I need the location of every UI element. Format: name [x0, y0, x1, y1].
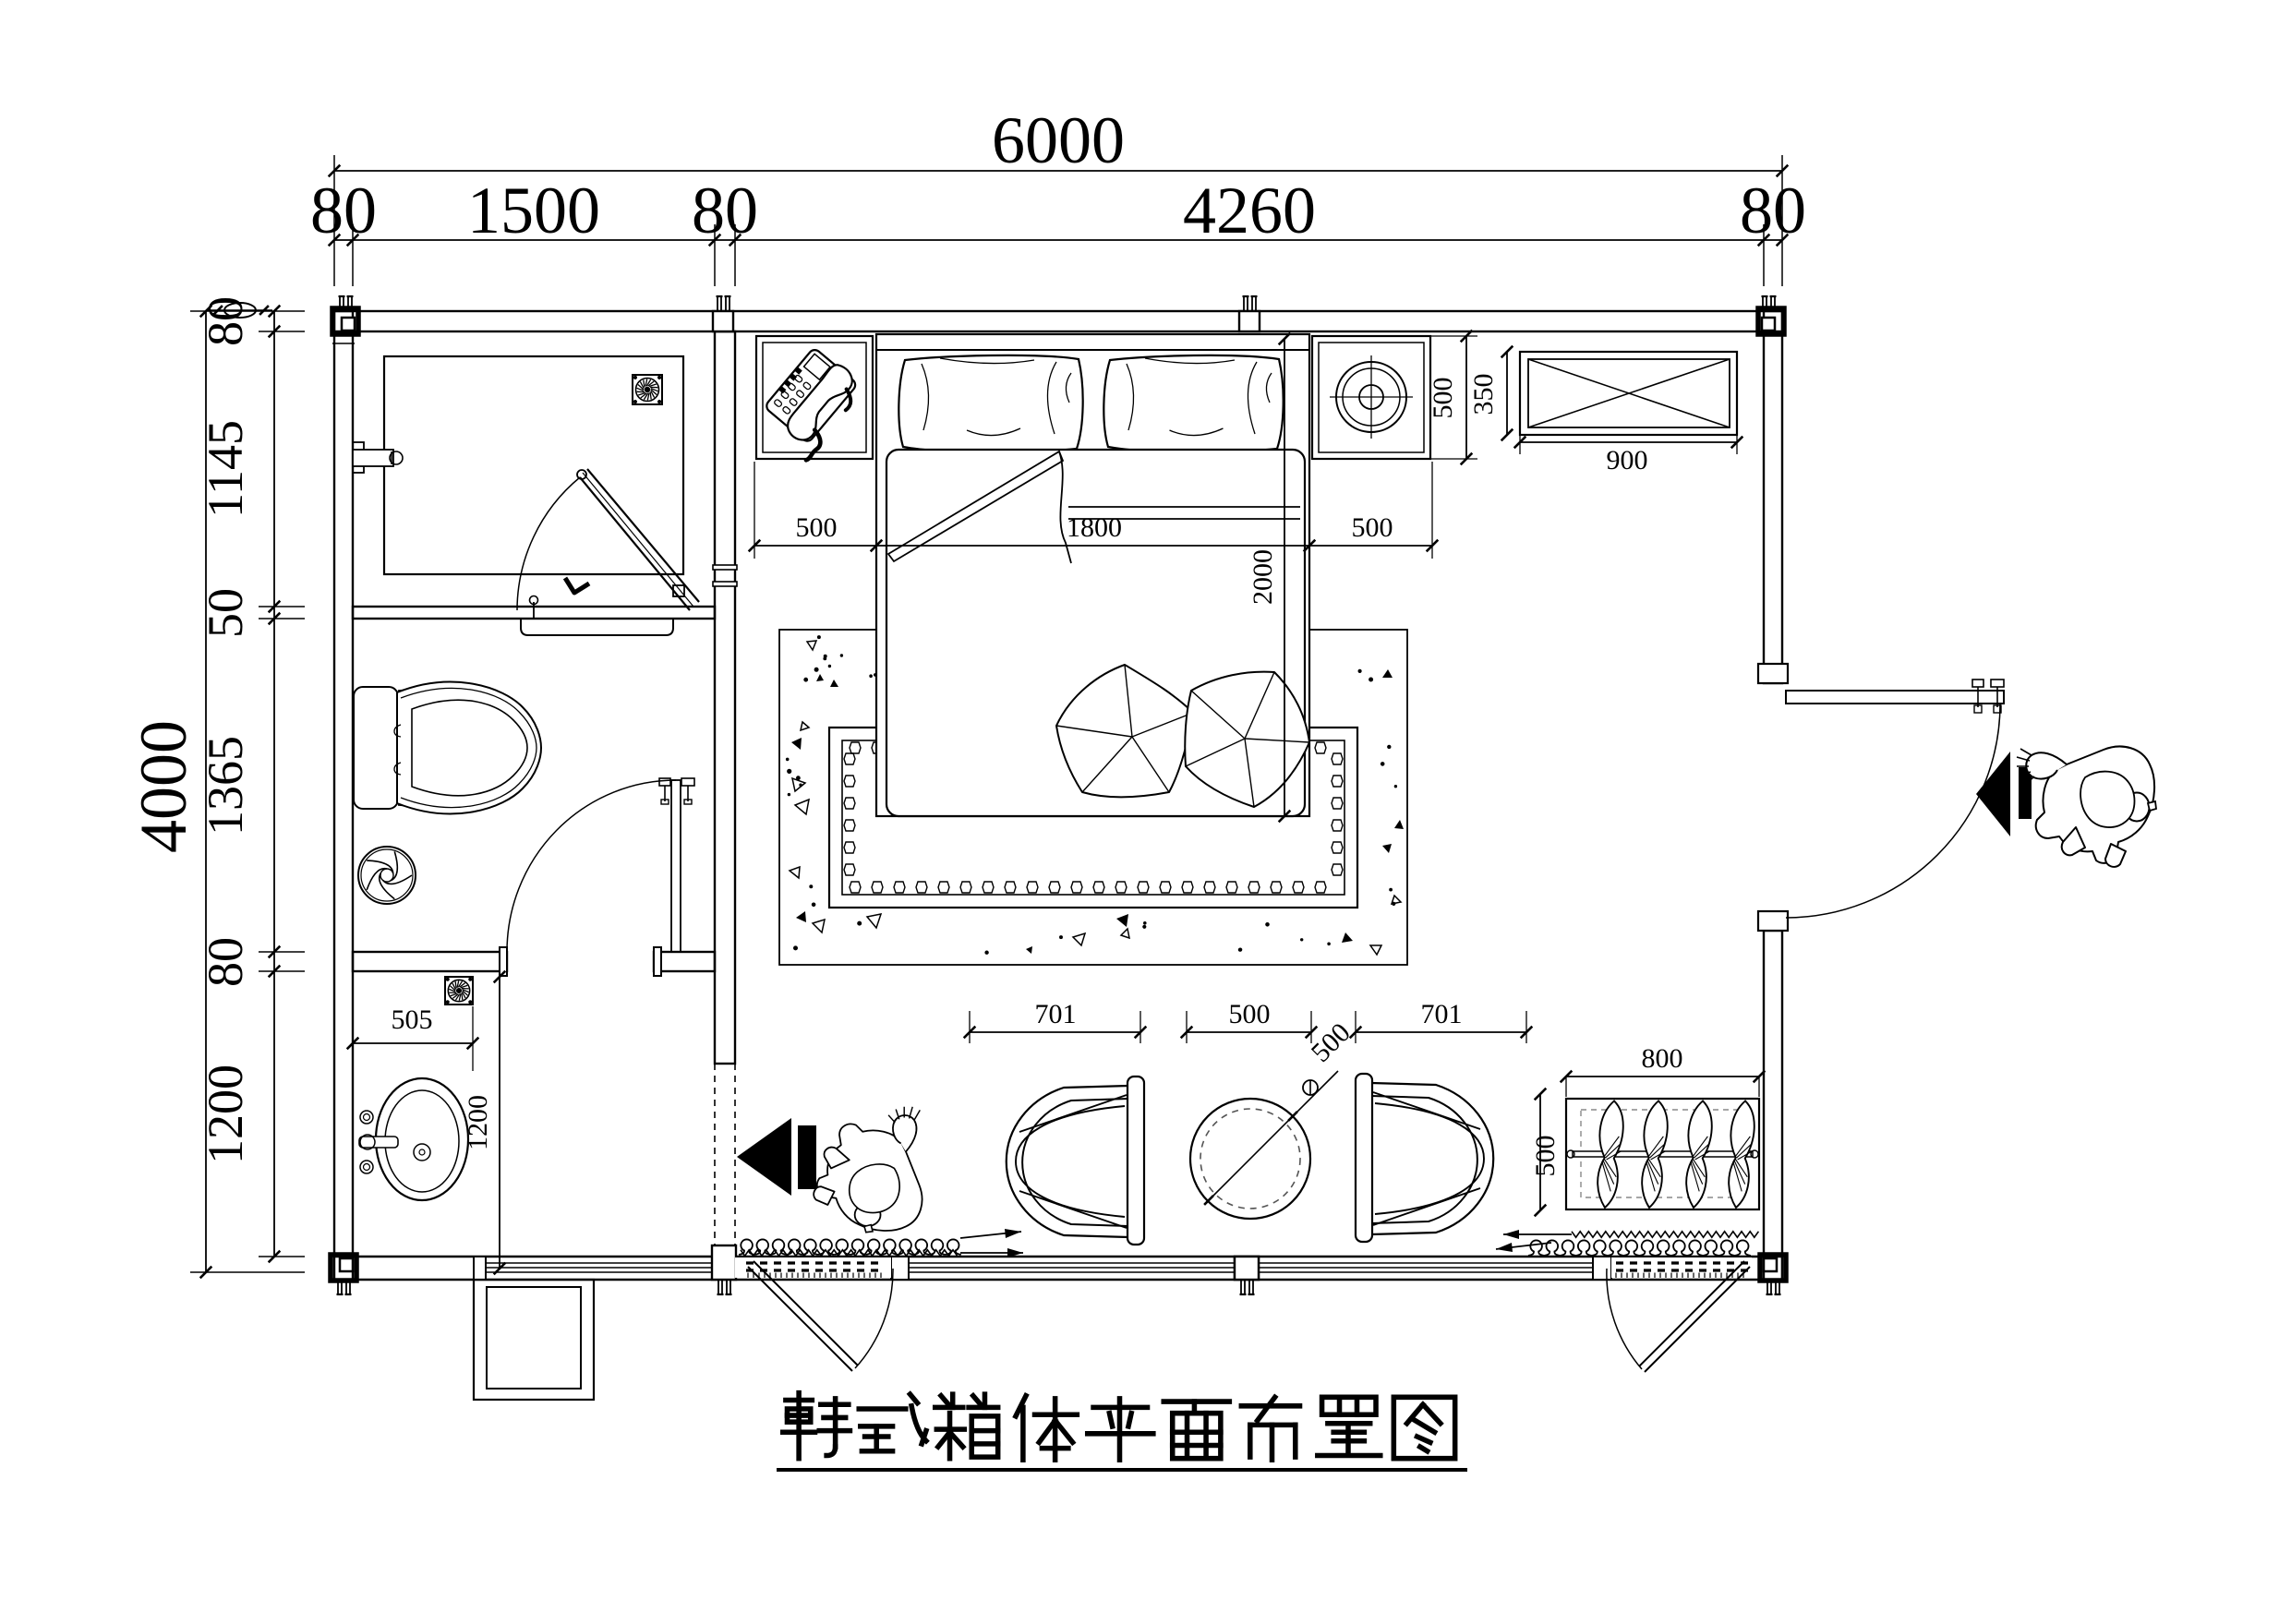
svg-text:701: 701: [1035, 999, 1077, 1029]
svg-text:1145: 1145: [198, 420, 253, 518]
svg-text:1365: 1365: [198, 736, 253, 836]
svg-text:6000: 6000: [992, 103, 1125, 177]
svg-text:4000: 4000: [127, 720, 200, 853]
svg-text:701: 701: [1421, 999, 1463, 1029]
svg-text:1200: 1200: [198, 1065, 253, 1164]
svg-text:900: 900: [1607, 445, 1648, 475]
svg-text:80: 80: [692, 174, 758, 247]
svg-text:500: 500: [796, 512, 838, 543]
svg-text:500: 500: [1530, 1136, 1561, 1177]
svg-text:350: 350: [1468, 374, 1499, 415]
svg-text:80: 80: [198, 296, 253, 346]
svg-text:80: 80: [1740, 174, 1806, 247]
svg-text:505: 505: [392, 1004, 433, 1035]
svg-text:2000: 2000: [1248, 549, 1278, 605]
svg-text:80: 80: [310, 174, 377, 247]
svg-text:1800: 1800: [1067, 512, 1122, 543]
svg-text:1500: 1500: [467, 174, 600, 247]
svg-text:1200: 1200: [463, 1095, 493, 1150]
svg-text:80: 80: [198, 937, 253, 987]
svg-text:500: 500: [1428, 378, 1458, 419]
svg-text:500: 500: [1352, 512, 1393, 543]
svg-text:50: 50: [198, 588, 253, 638]
svg-text:4260: 4260: [1183, 174, 1316, 247]
svg-text:800: 800: [1642, 1043, 1683, 1074]
svg-text:500: 500: [1229, 999, 1271, 1029]
